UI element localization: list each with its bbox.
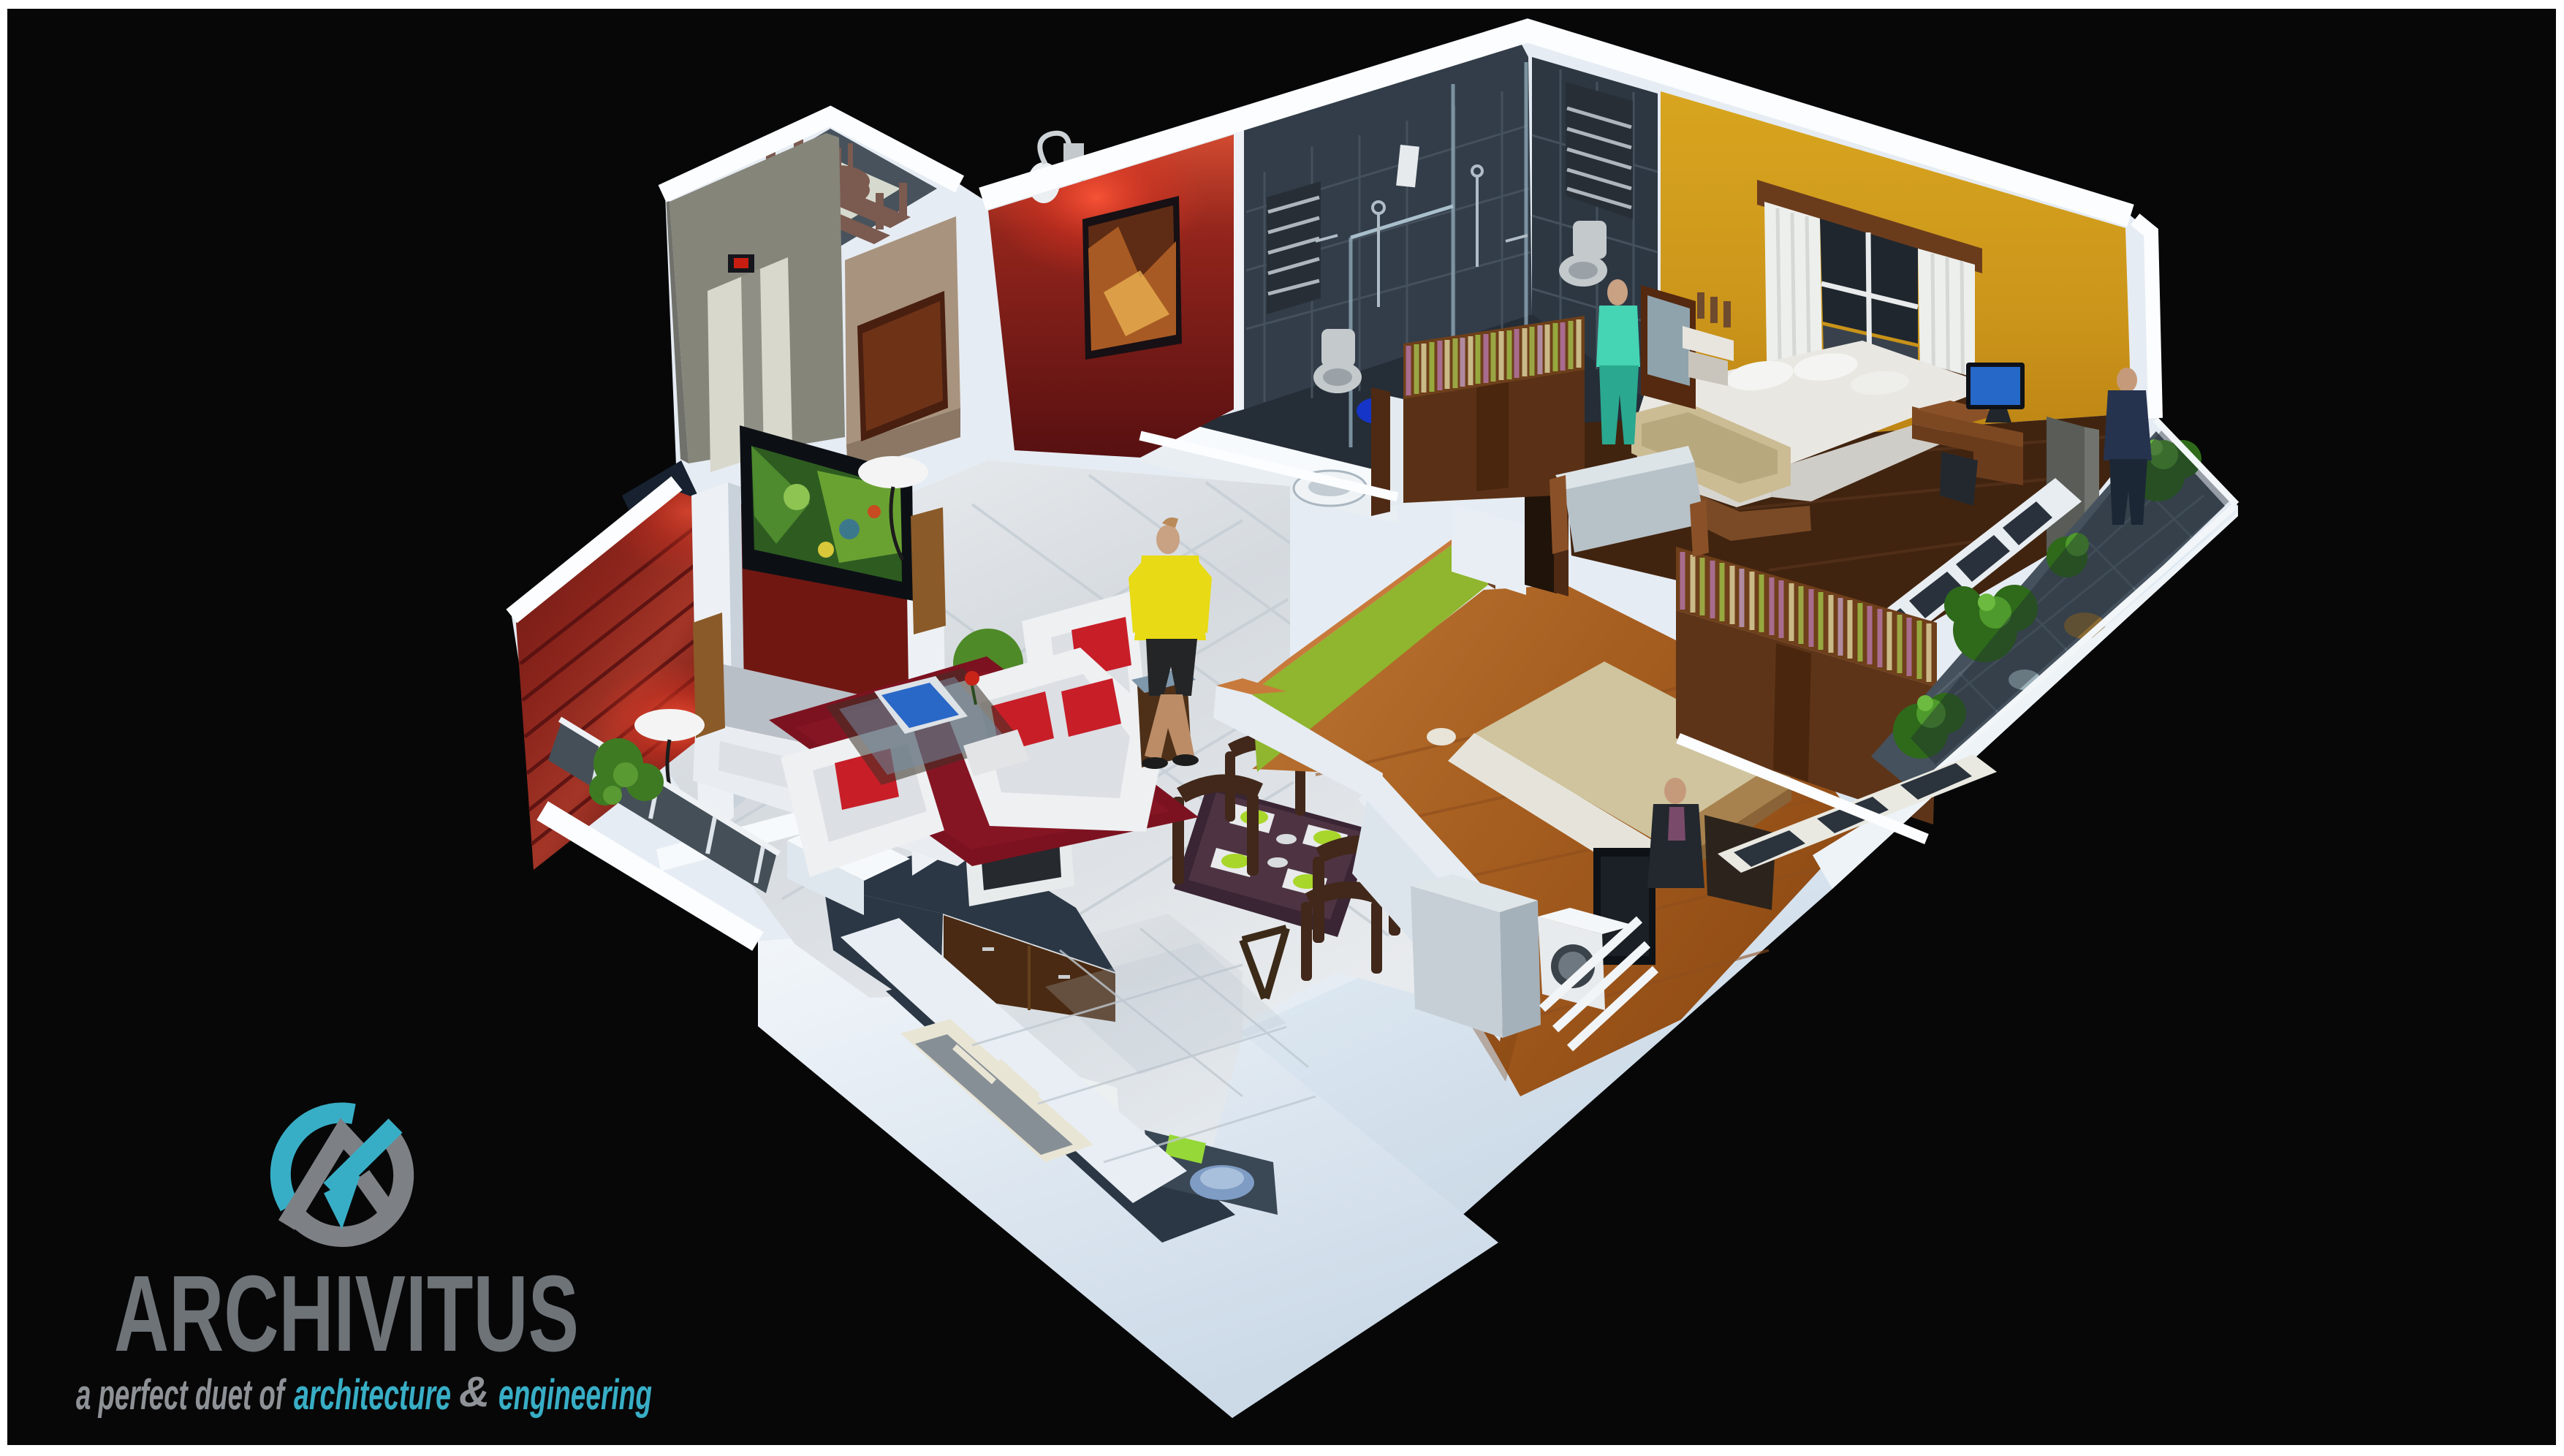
svg-text:&: & <box>459 1368 490 1416</box>
svg-text:a perfect duet of: a perfect duet of <box>76 1371 287 1419</box>
svg-text:ARCHIVITUS: ARCHIVITUS <box>114 1254 579 1374</box>
svg-text:engineering: engineering <box>498 1371 652 1419</box>
svg-text:architecture: architecture <box>294 1371 451 1419</box>
